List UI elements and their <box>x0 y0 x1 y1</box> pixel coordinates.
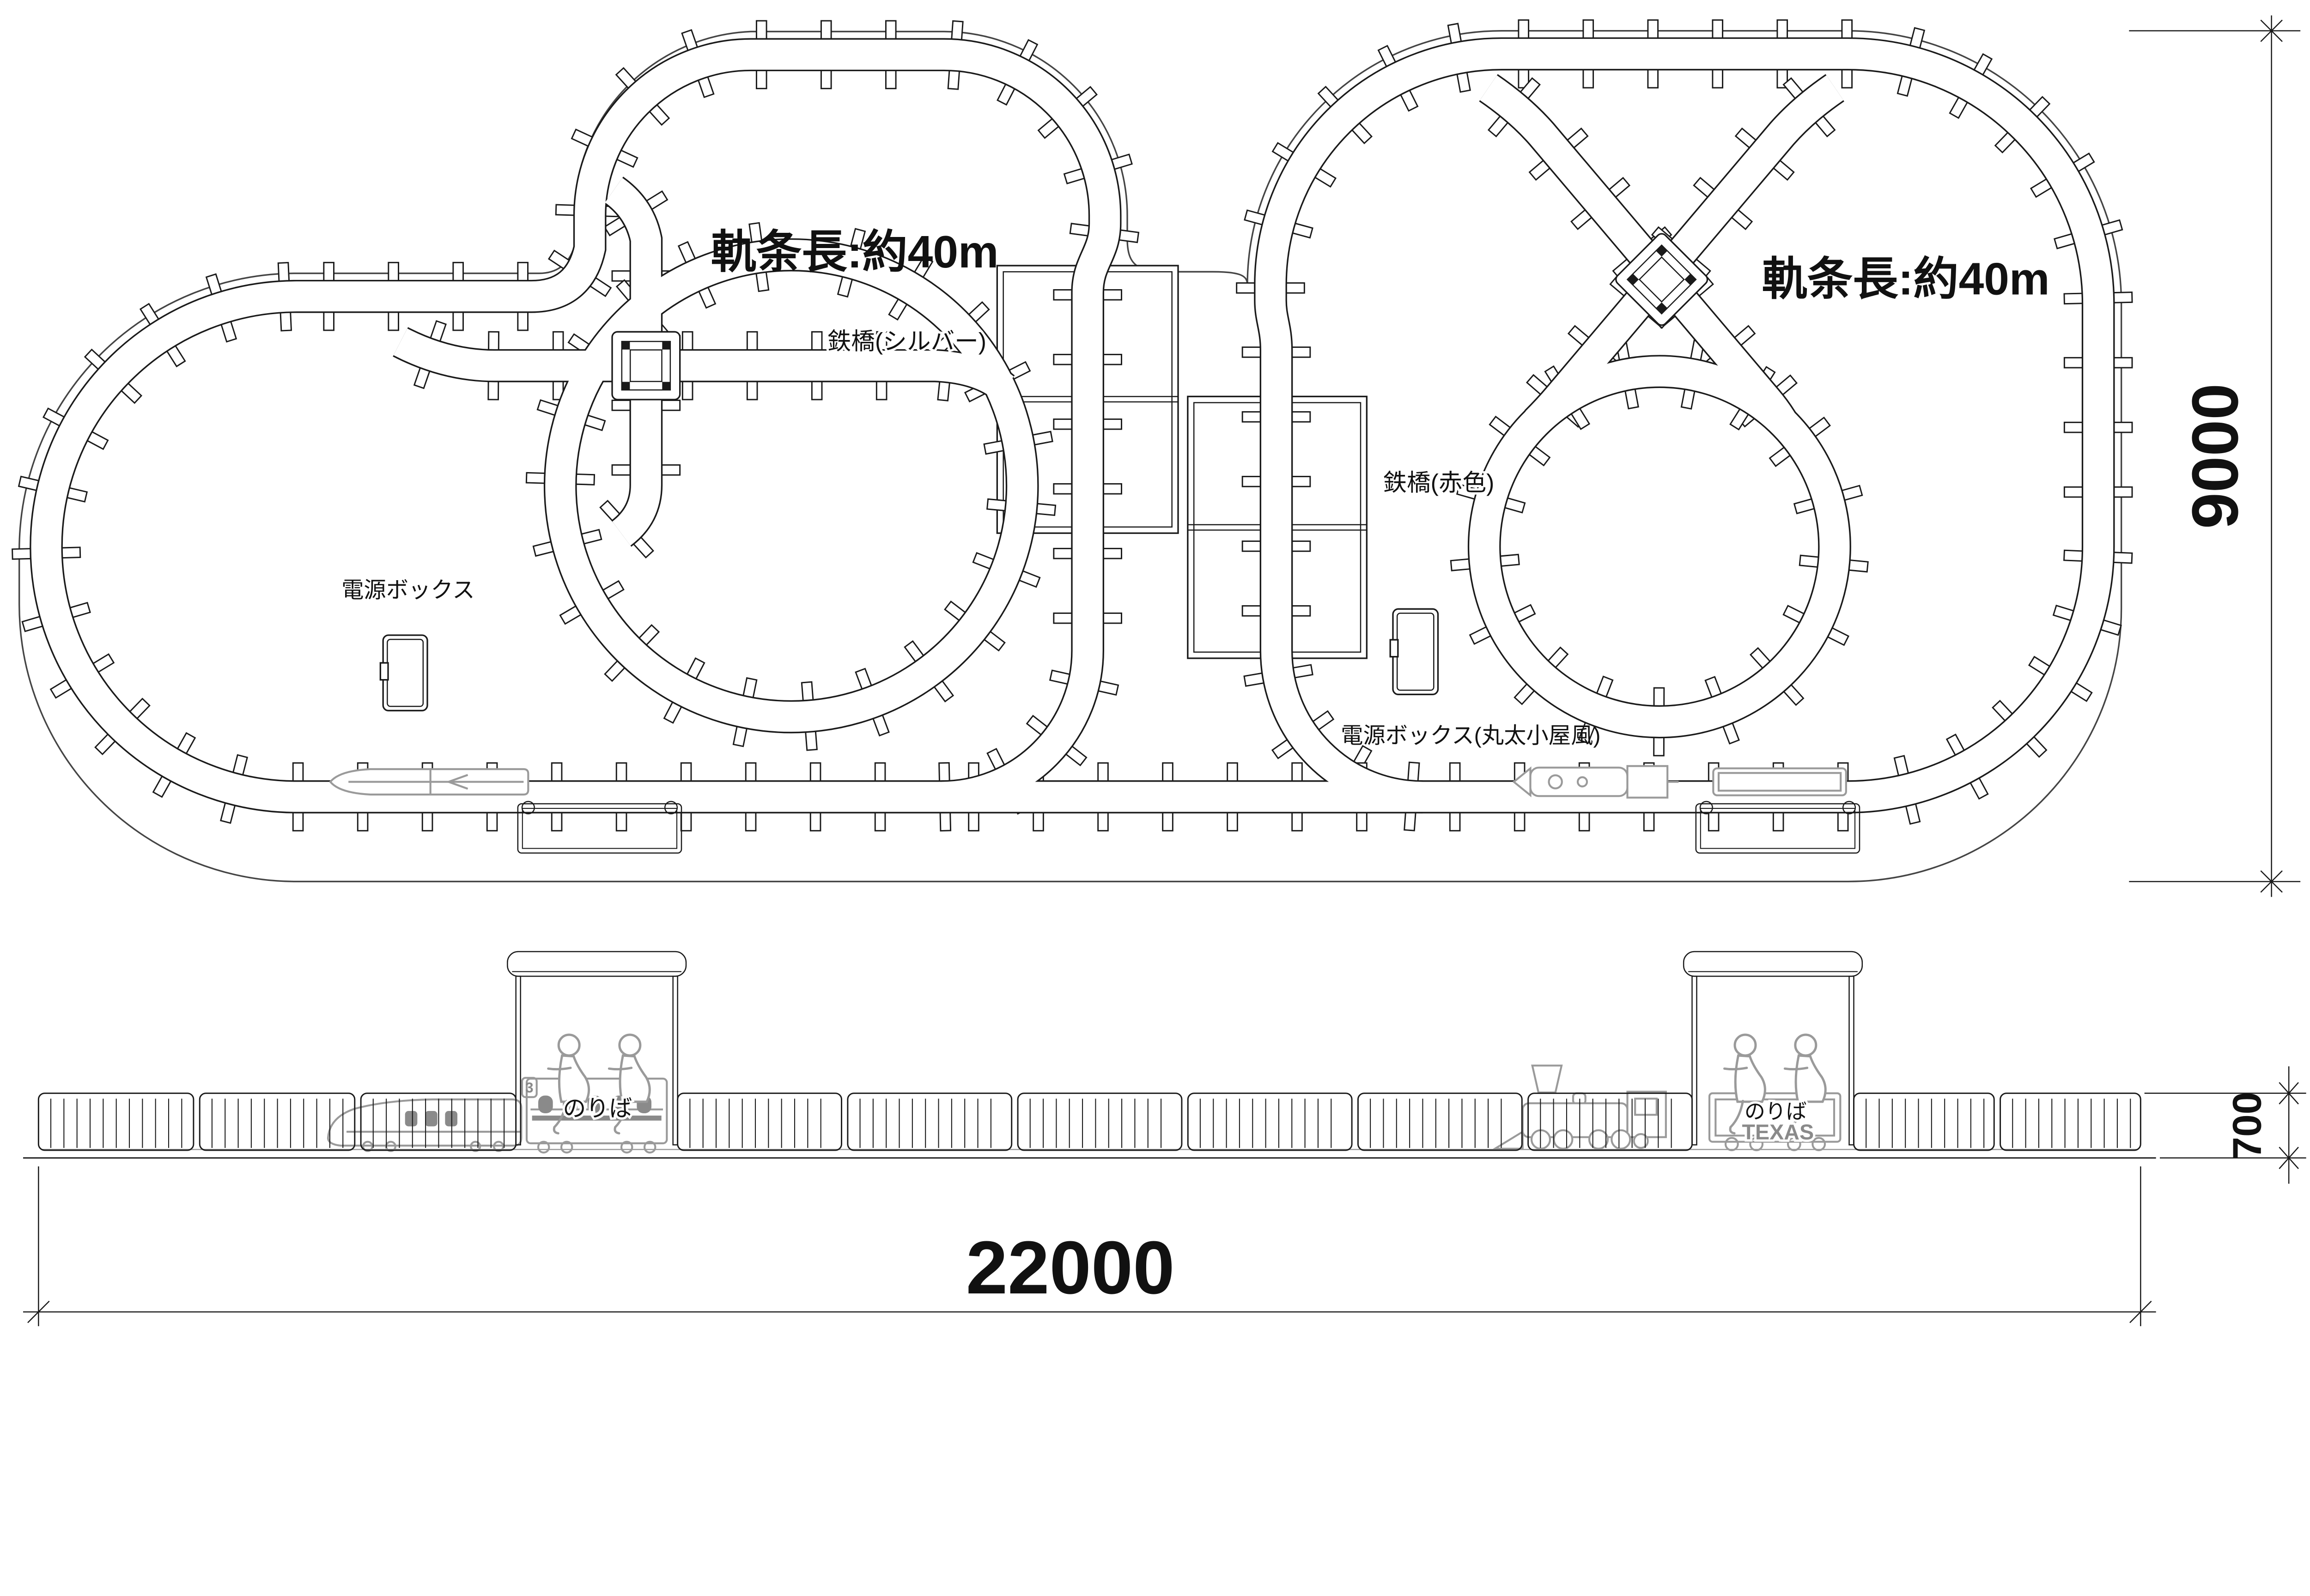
power-box-label: 電源ボックス <box>341 577 475 602</box>
car-number-badge: 3 <box>525 1079 534 1096</box>
svg-text:700: 700 <box>2224 1092 2269 1159</box>
fence-panel <box>1188 1093 1352 1150</box>
power-box <box>380 635 427 710</box>
silver-bridge-label: 鉄橋(シルバー) <box>827 328 986 355</box>
left-rail-length-label: 軌条長:約40m <box>711 226 999 277</box>
drawing-sheet: 軌条長:約40m 軌条長:約40m 鉄橋(シルバー) 鉄橋(赤色) 電源ボックス… <box>0 0 2310 1330</box>
plan-view: 軌条長:約40m 軌条長:約40m 鉄橋(シルバー) 鉄橋(赤色) 電源ボックス… <box>12 20 2132 881</box>
tender-name-label: TEXAS <box>1742 1120 1814 1144</box>
elevation-view: 3 のりば のりば TEXAS <box>23 952 2156 1158</box>
rail-gap <box>1484 371 1835 722</box>
fence-panel <box>1854 1093 1994 1150</box>
svg-text:9000: 9000 <box>2179 383 2252 529</box>
fence-panel <box>2000 1093 2141 1150</box>
shinkansen-train-elevation <box>328 1099 521 1151</box>
svg-text:22000: 22000 <box>966 1226 1175 1310</box>
fence-panel <box>848 1093 1012 1150</box>
shinkansen-train-plan <box>330 769 528 795</box>
dimension-9000: 9000 <box>2129 15 2300 897</box>
power-box-log-cabin-label: 電源ボックス(丸太小屋風) <box>1341 723 1600 748</box>
power-box-log-cabin <box>1390 609 1438 694</box>
fence-panel <box>1018 1093 1182 1150</box>
steam-locomotive-elevation <box>1495 1066 1666 1149</box>
train-park-site-plan: 軌条長:約40m 軌条長:約40m 鉄橋(シルバー) 鉄橋(赤色) 電源ボックス… <box>0 0 2310 1330</box>
dimension-22000: 22000 <box>23 1166 2156 1326</box>
red-bridge-label: 鉄橋(赤色) <box>1383 469 1494 496</box>
left-diamond-crossing <box>612 332 680 400</box>
dimension-700: 700 <box>2145 1066 2306 1183</box>
fence-panel <box>1358 1093 1522 1150</box>
fence-panel <box>678 1093 842 1150</box>
right-rail-length-label: 軌条長:約40m <box>1762 253 2050 304</box>
left-platform-sign: のりば <box>563 1096 632 1122</box>
